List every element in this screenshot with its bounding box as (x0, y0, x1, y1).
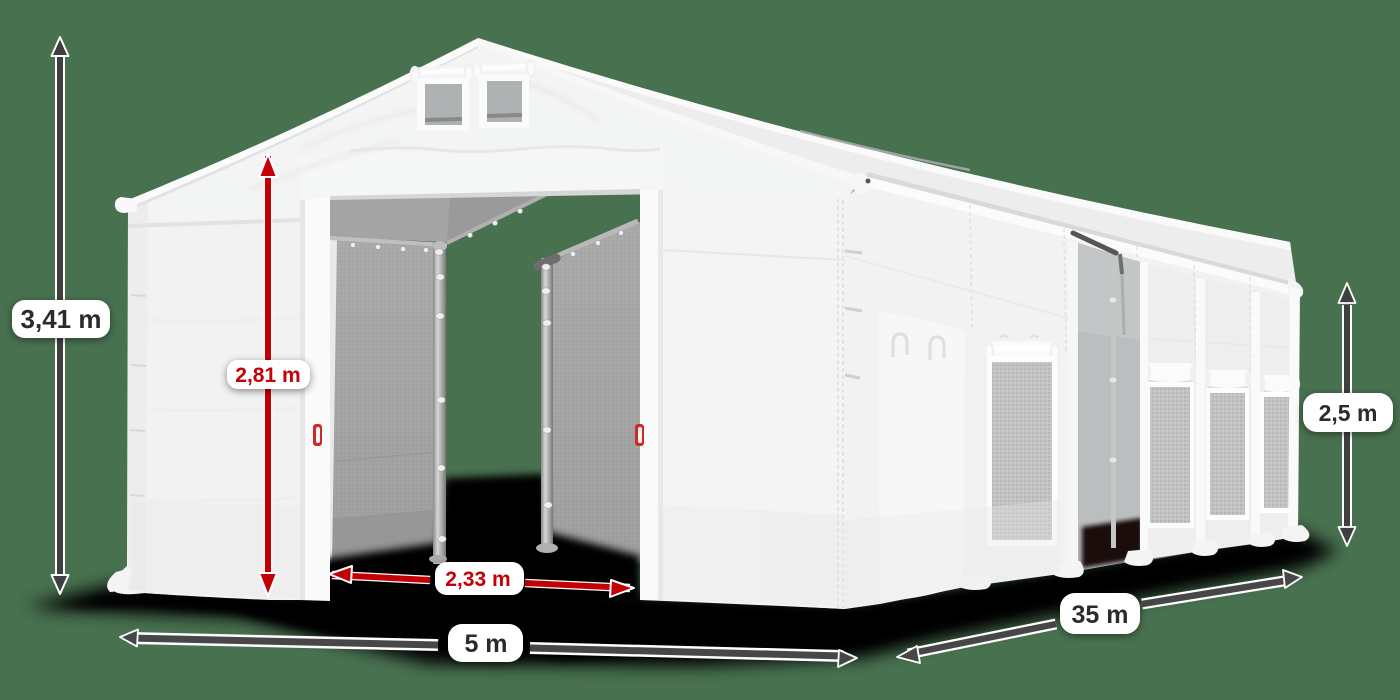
svg-text:2,33 m: 2,33 m (445, 568, 510, 591)
svg-text:35 m: 35 m (1072, 601, 1129, 629)
svg-text:2,5 m: 2,5 m (1319, 400, 1378, 426)
svg-text:2,81 m: 2,81 m (235, 364, 300, 387)
svg-text:5 m: 5 m (464, 630, 507, 658)
svg-text:3,41 m: 3,41 m (21, 304, 102, 334)
